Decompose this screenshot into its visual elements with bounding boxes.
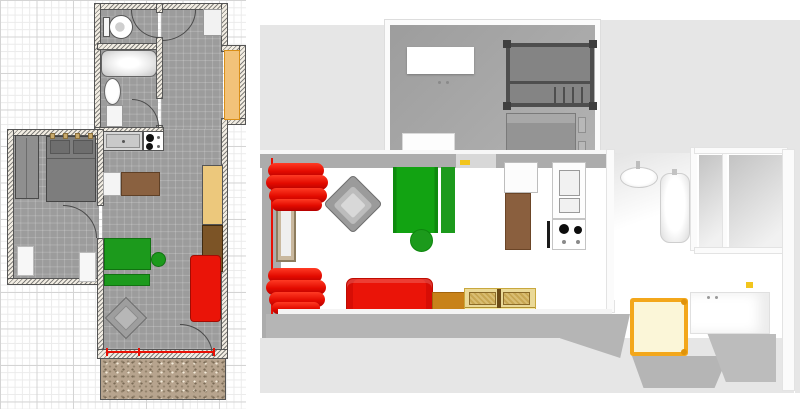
wall [95,4,100,143]
wardrobe-seam [26,138,27,198]
outside-ground [600,20,795,155]
selected-window-handle[interactable] [106,348,108,356]
basket-weave [503,292,530,305]
wall-3d [691,148,699,250]
small-room-3d [729,155,787,248]
wall [98,239,103,358]
wall [222,4,227,48]
wall [98,44,160,49]
shower-knob [681,299,687,305]
chest-divider [497,289,501,308]
bed-post [75,133,80,139]
bunk-post [589,102,597,110]
shower-yellow-3d[interactable] [630,298,688,356]
pedestal-sink[interactable] [104,78,121,105]
fridge-top-white-3d[interactable] [504,162,538,193]
radiator-white[interactable] [17,246,34,276]
wardrobe-tan[interactable] [202,165,223,225]
floor-shadow-gray [632,356,728,388]
pillow [50,140,70,154]
tub-faucet [672,169,677,175]
fridge-unit-white-3d[interactable] [552,162,586,219]
outside-ground [795,20,800,393]
faucet-yellow-small [746,282,753,288]
stove-dial-icon [157,136,160,139]
bathtub-3d[interactable] [660,173,690,243]
small-room-3d [699,155,725,248]
burner-icon [574,226,582,234]
red-curtain-upper[interactable] [266,163,328,211]
armchair-gray-3d[interactable] [323,174,382,233]
selected-window-handle[interactable] [213,348,215,356]
burner-icon [559,224,569,234]
wall-closet-orange[interactable] [224,50,240,120]
wall-light-yellow[interactable] [460,160,470,165]
window-pane [281,211,291,256]
window-door-tan[interactable] [276,205,296,262]
shower-knob [681,349,687,355]
bed-post [50,133,55,139]
sofa-bed-green-3d[interactable] [393,167,438,233]
radiator-white[interactable] [79,252,96,282]
sofa-red-2d[interactable] [190,255,221,322]
kitchen-sink[interactable] [103,131,143,151]
burner-icon [146,134,154,142]
fridge-door-lower [559,198,580,213]
pillow [73,140,93,154]
bed-post [88,133,93,139]
counter-faucet-dot [707,296,710,299]
chest-top [465,289,535,308]
bunk-bed-3d[interactable] [506,43,594,107]
double-bed-2d[interactable] [46,136,96,202]
blanket-seam [47,158,95,159]
wall-3d [695,148,787,153]
wall-3d [783,150,794,390]
red-curtain-lower[interactable] [266,268,326,314]
nightstand[interactable] [578,117,586,133]
wall-3d [695,248,787,253]
bedroom-wardrobe-gray[interactable] [15,135,39,199]
stove-2d[interactable] [143,131,164,151]
bathroom-sink-3d[interactable] [620,167,658,188]
white-wardrobe-3d[interactable] [407,47,474,74]
wall-3d [607,150,614,312]
sofa-bed-green-seat-2d[interactable] [104,274,150,286]
sink-faucet [636,161,640,169]
counter-faucet-dot [715,296,718,299]
toilet[interactable] [109,15,133,39]
stove-dial-icon [576,240,580,244]
selected-window-red[interactable] [106,351,215,353]
side-table-white[interactable] [103,172,121,196]
sofa-bed-green-back-3d[interactable] [441,167,455,233]
pouf-green-3d[interactable] [410,229,433,252]
bunk-rail [510,81,590,84]
burner-icon [146,143,153,150]
sofa-bed-green-2d[interactable] [104,238,151,270]
outside-ground [260,25,387,155]
bathroom-cabinet[interactable] [106,105,123,127]
wall [157,38,162,98]
faucet-icon [122,140,125,143]
bunk-post [589,40,597,48]
bathroom-3d [614,153,692,300]
wardrobe-handle [438,81,441,84]
basket-weave [469,292,496,305]
sink-counter-white-3d[interactable] [690,292,770,334]
hall-cabinet[interactable] [203,9,222,36]
stove-dial-icon [157,145,160,148]
terrace-2d[interactable] [100,358,226,400]
wall [8,130,13,284]
bunk-post [503,102,511,110]
bunk-post [503,40,511,48]
view-3d-panel[interactable] [246,0,800,409]
bedroom-3d [385,20,600,160]
bunk-ladder [554,87,590,103]
kitchen-cabinet-brown-3d[interactable] [505,193,531,250]
fridge-door-upper [559,170,580,196]
wardrobe-handle [446,81,449,84]
bathtub[interactable] [101,50,157,77]
radiator-dark [547,221,550,248]
bed-post [63,133,68,139]
coffee-table-top [113,305,138,330]
wall [240,46,245,124]
floor-plan-2d-panel[interactable] [0,0,246,409]
selected-window-handle[interactable] [138,348,140,356]
stove-3d[interactable] [552,219,586,250]
home-design-app [0,0,800,409]
stove-dial-icon [562,240,566,244]
dining-table-brown[interactable] [121,172,160,196]
pouf-green-2d[interactable] [151,252,166,267]
